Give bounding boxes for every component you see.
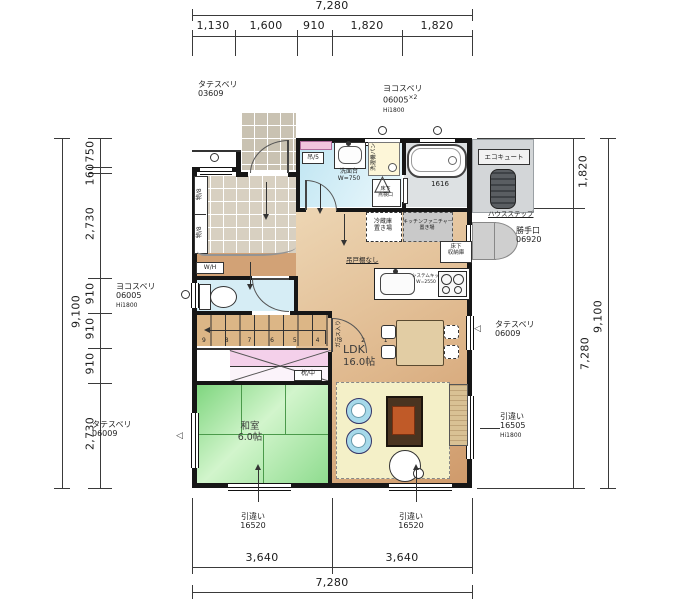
- window-tatesuberi-06009-ldk: [466, 316, 474, 350]
- window-mark-icon: [210, 153, 219, 162]
- stair-closet-divider: [197, 348, 328, 350]
- house-step-label: ハウスステップ: [488, 211, 534, 219]
- dim-tick: [332, 30, 333, 56]
- callout-line: 06005: [383, 96, 408, 105]
- cooktop-burner: [454, 286, 462, 294]
- window-hikichigai-16520-washitsu: [228, 483, 291, 491]
- callout-line: 引違い: [500, 412, 524, 421]
- cooktop-burner: [441, 274, 452, 285]
- kitchen-furniture-label: キッチンファニチャー 置き場: [403, 220, 451, 231]
- dim-seg: 2,730: [86, 204, 95, 244]
- callout-hikichigai-16520-left: 引違い 16520: [228, 512, 278, 530]
- dim-tick: [561, 488, 585, 489]
- callout-tatesuberi-06009-right: タテスベリ 06009: [495, 320, 534, 338]
- callout-height: Hi1800: [116, 302, 137, 309]
- dim-tick: [192, 9, 193, 21]
- callout-line: 06009: [495, 329, 520, 338]
- callout-yokosuberi-06005x2: ヨコスベリ 06005×2 Hi1800: [383, 84, 422, 114]
- stair-arrow-line: [210, 330, 326, 331]
- flow-arrow: [250, 262, 251, 284]
- flow-arrow-head: [317, 208, 323, 214]
- cooktop-burner: [442, 286, 450, 294]
- dim-ext: [472, 498, 473, 560]
- callout-leader: [480, 428, 500, 429]
- washitsu-size: 6.0帖: [238, 432, 263, 443]
- window-mark-icon: [181, 290, 190, 299]
- toilet-door-leaf: [252, 278, 289, 280]
- dim-seg: 7,280: [581, 334, 590, 374]
- dim-total-right: 9,100: [594, 297, 603, 337]
- toilet-bowl: [210, 286, 237, 308]
- window-mark-icon: [378, 126, 387, 135]
- dining-chair: [381, 325, 396, 339]
- wall: [452, 483, 472, 488]
- shoe-cabinet-label: 物/8: [197, 174, 204, 214]
- wall: [236, 150, 241, 177]
- washroom-door-leaf: [305, 180, 307, 210]
- wall: [192, 483, 228, 488]
- window-tatesuberi-06009-washitsu: [191, 413, 199, 468]
- genkan-tiles: [197, 175, 296, 253]
- callout-line: タテスベリ: [92, 420, 131, 429]
- window-mark-icon: [433, 126, 442, 135]
- callout-line: 16505: [500, 421, 525, 430]
- callout-height: Hi1800: [500, 432, 521, 439]
- kitchen-sink: [380, 273, 415, 295]
- vanity-faucet: [346, 141, 351, 146]
- callout-hikichigai-16505: 引違い 16505 Hi1800: [500, 412, 525, 440]
- tv-board: [449, 384, 468, 446]
- callout-line: 引違い: [399, 512, 423, 521]
- dim-tick: [235, 30, 236, 56]
- dim-seg: 1,820: [407, 21, 467, 30]
- room-label-ldk: LDK 16.0帖: [343, 344, 375, 369]
- vanity-bowl: [338, 146, 362, 164]
- flow-arrow-head: [263, 214, 269, 220]
- house-step-round: [494, 222, 518, 260]
- dim-tick: [192, 585, 193, 599]
- dim-total-top: 7,280: [302, 1, 362, 10]
- callout-height: Hi1800: [383, 107, 404, 114]
- ldk-glass-door-leaf: [331, 318, 333, 352]
- hearth-fire: [392, 406, 415, 435]
- floor-hatch-label: 床下 点検口: [372, 187, 399, 198]
- flow-arrow: [344, 214, 345, 240]
- closet: [230, 350, 330, 366]
- wall: [192, 311, 252, 315]
- dim-seg: 1,820: [579, 152, 588, 192]
- wall: [291, 483, 389, 488]
- dining-table: [396, 320, 444, 366]
- dim-tick: [402, 30, 403, 56]
- window-flag-icon: ◁: [474, 325, 481, 334]
- dim-ext: [332, 498, 333, 560]
- dim-seg: 910: [86, 309, 95, 349]
- dim-line: [62, 138, 63, 488]
- callout-line: 06009: [92, 429, 117, 438]
- dim-total-left: 9,100: [72, 292, 81, 332]
- system-kitchen-label: システムキッチン W=2550: [412, 274, 440, 285]
- lounge-chair-cushion: [351, 403, 366, 418]
- window-leader: [258, 468, 259, 502]
- callout-line: タテスベリ: [198, 80, 237, 89]
- dim-line: [608, 138, 609, 488]
- dining-chair: [444, 325, 459, 339]
- lounge-chair-cushion: [351, 433, 366, 448]
- callout-line: タテスベリ: [495, 320, 534, 329]
- dim-tick: [472, 560, 473, 574]
- dim-line: [573, 138, 574, 488]
- porch-edge: [192, 150, 241, 152]
- dining-chair: [444, 345, 459, 359]
- dim-tick: [54, 488, 70, 489]
- wall: [328, 352, 332, 488]
- wall: [192, 308, 197, 413]
- ecocute-label: エコキュート: [478, 149, 530, 165]
- callout-hikichigai-16520-right: 引違い 16520: [386, 512, 436, 530]
- dim-tick: [332, 560, 333, 574]
- stair-arrow-head: [204, 327, 210, 333]
- kitchen-furniture-line2: 置き場: [419, 225, 434, 231]
- flow-arrow-head: [341, 240, 347, 246]
- vanity-label: 洗面台 W=750: [331, 169, 367, 182]
- callout-line: 03609: [198, 89, 223, 98]
- dim-tick: [600, 488, 616, 489]
- flow-arrow: [266, 182, 267, 214]
- dim-line: [192, 15, 472, 16]
- dim-seg: 910: [86, 344, 95, 384]
- dim-seg: 910: [284, 21, 344, 30]
- dim-tick: [192, 30, 193, 56]
- callout-line: 引違い: [241, 512, 265, 521]
- window-leader-head: [413, 464, 419, 470]
- hanging-shelf-label: 吊/5: [302, 152, 324, 164]
- tatami-line: [285, 385, 286, 434]
- callout-mult: ×2: [408, 94, 417, 101]
- flow-arrow: [320, 184, 321, 208]
- washitsu-name: 和室: [240, 421, 259, 432]
- floor-storage-line2: 収納庫: [448, 250, 465, 256]
- stair-arrow-line: [325, 330, 326, 344]
- cooktop-burner: [453, 274, 464, 285]
- no-hanging-cupboard-label: 吊戸棚なし: [346, 257, 379, 265]
- dim-tick: [472, 585, 473, 599]
- bathroom-door-leaf: [403, 178, 408, 204]
- wh-label: W/H: [196, 262, 224, 274]
- system-kitchen-line2: W=2550: [416, 280, 436, 285]
- floor-hatch-label-line2: 点検口: [378, 192, 393, 198]
- ldk-size: 16.0帖: [343, 357, 375, 368]
- dim-tick: [561, 138, 585, 139]
- callout-yokosuberi-06005-toilet: ヨコスベリ 06005 Hi1800: [116, 282, 155, 310]
- fridge-label-line2: 置き場: [374, 225, 392, 232]
- window-leader-head: [255, 464, 261, 470]
- window-hikichigai-16520-ldk: [389, 483, 452, 491]
- dim-tick: [54, 138, 70, 139]
- dim-seg: 3,640: [232, 553, 292, 562]
- dim-ext: [477, 488, 563, 489]
- window-yokosuberi-06005-toilet: [191, 283, 199, 308]
- dim-seg: 1,130: [183, 21, 243, 30]
- kitchen-faucet: [393, 269, 398, 274]
- callout-line: 勝手口: [516, 226, 540, 235]
- callout-katteguchi: 勝手口 06920: [516, 226, 541, 244]
- dim-seg: 160: [86, 155, 95, 195]
- fridge-space-label: 冷蔵庫 置き場: [366, 219, 400, 232]
- wall: [294, 276, 298, 315]
- dim-total-bottom: 7,280: [302, 578, 362, 587]
- callout-tatesuberi-06009-left: タテスベリ 06009: [92, 420, 131, 438]
- glass-door-label: ガラス入り: [336, 314, 342, 354]
- dim-tick: [472, 9, 473, 21]
- dim-seg: 1,820: [337, 21, 397, 30]
- room-label-washitsu: 和室 6.0帖: [230, 421, 270, 443]
- floor-storage-label: 床下 収納庫: [440, 241, 472, 263]
- flow-arrow-head: [247, 284, 253, 290]
- ecocute-tank: [490, 169, 516, 209]
- dim-ext: [192, 498, 193, 560]
- callout-line: 16520: [240, 521, 265, 530]
- dining-chair: [381, 345, 396, 359]
- callout-line: 16520: [398, 521, 423, 530]
- entrance-door-leaf: [287, 140, 289, 173]
- dim-seg: 3,640: [372, 553, 432, 562]
- wall: [192, 381, 332, 385]
- ldk-name: LDK: [343, 343, 365, 356]
- bath-size-label: 1616: [420, 180, 460, 188]
- callout-line: 06920: [516, 235, 541, 244]
- dim-tick: [600, 138, 616, 139]
- bathtub-drain: [448, 156, 457, 165]
- callout-line: 06005: [116, 291, 141, 300]
- closet-shelf-label: 枕/中: [294, 370, 322, 381]
- dim-tick: [297, 30, 298, 56]
- dim-seg: 910: [86, 274, 95, 314]
- window-leader: [416, 468, 417, 502]
- dim-tick: [561, 208, 585, 209]
- dim-tick: [192, 560, 193, 574]
- callout-tatesuberi-03609: タテスベリ 03609: [198, 80, 237, 98]
- wall: [402, 141, 406, 175]
- house-step: [472, 222, 496, 260]
- callout-line: ヨコスベリ: [116, 282, 155, 291]
- floor-plan: 7,280 1,130 1,600 910 1,820 1,820 9,100 …: [0, 0, 690, 600]
- callout-line: ヨコスベリ: [383, 84, 422, 93]
- dim-line: [192, 592, 472, 593]
- vanity-label-line2: W=750: [338, 175, 360, 182]
- wall: [241, 172, 248, 177]
- window-flag-icon: ◁: [176, 432, 183, 441]
- dim-tick: [472, 30, 473, 56]
- wall: [290, 311, 332, 315]
- washroom-shelf: [300, 141, 332, 150]
- dim-tick: [88, 488, 112, 489]
- wall: [192, 276, 252, 280]
- window-tatesuberi-03609: [200, 167, 232, 175]
